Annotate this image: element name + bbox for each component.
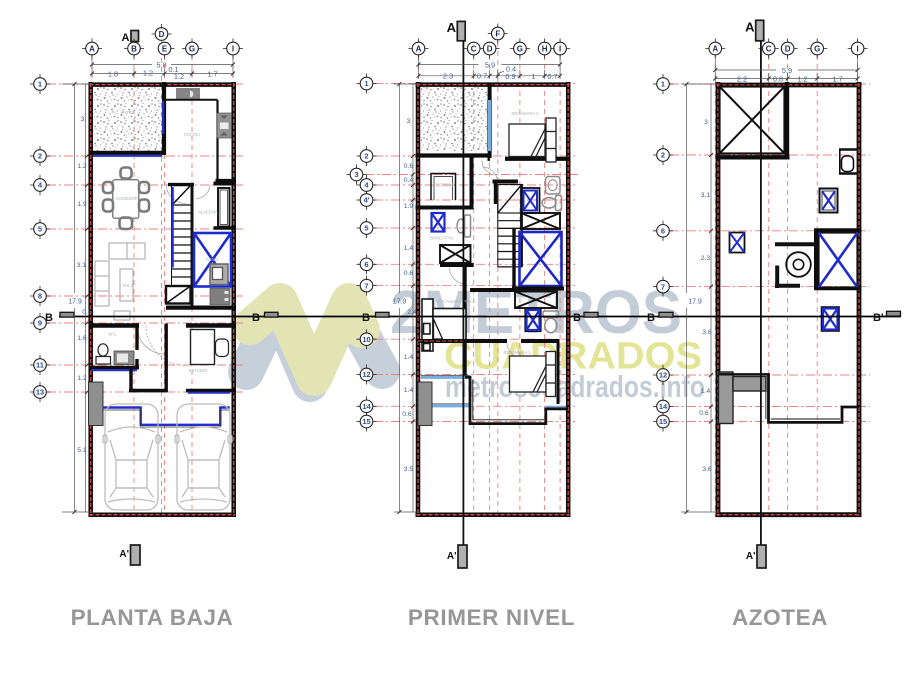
- svg-text:COMEDOR: COMEDOR: [116, 196, 138, 201]
- svg-text:3: 3: [81, 116, 85, 123]
- svg-text:9: 9: [38, 319, 42, 328]
- svg-text:10: 10: [362, 335, 370, 344]
- svg-text:1.4: 1.4: [404, 245, 414, 252]
- svg-text:I: I: [232, 44, 234, 53]
- svg-text:1.2: 1.2: [797, 74, 807, 83]
- svg-text:B: B: [647, 312, 655, 324]
- svg-text:0.6: 0.6: [404, 163, 414, 170]
- svg-text:A': A': [746, 551, 756, 562]
- svg-text:3: 3: [407, 118, 411, 125]
- svg-text:D: D: [785, 44, 791, 53]
- svg-text:2: 2: [38, 152, 42, 161]
- svg-text:7: 7: [364, 281, 368, 290]
- svg-text:2.4: 2.4: [407, 309, 417, 316]
- svg-text:15: 15: [659, 417, 667, 426]
- svg-text:VESTIDOR: VESTIDOR: [433, 183, 454, 188]
- svg-text:14: 14: [659, 402, 668, 411]
- svg-text:0.4: 0.4: [404, 177, 414, 184]
- svg-text:C: C: [766, 44, 772, 53]
- svg-text:0.9: 0.9: [505, 72, 515, 81]
- svg-text:1: 1: [364, 79, 368, 88]
- svg-text:3.5: 3.5: [404, 466, 414, 473]
- svg-text:2: 2: [364, 152, 368, 161]
- svg-text:12: 12: [362, 370, 370, 379]
- svg-text:4': 4': [364, 196, 370, 205]
- svg-text:1.7: 1.7: [207, 69, 217, 78]
- svg-text:1: 1: [531, 72, 535, 81]
- svg-text:1.8: 1.8: [108, 69, 118, 78]
- svg-text:RECAMARA 1: RECAMARA 1: [504, 350, 532, 355]
- svg-text:A': A': [447, 551, 457, 562]
- svg-text:1.4: 1.4: [404, 387, 414, 394]
- svg-text:A: A: [447, 20, 457, 35]
- svg-text:BAÑO PPAL: BAÑO PPAL: [430, 236, 454, 241]
- svg-text:5.1: 5.1: [77, 447, 87, 454]
- svg-text:14: 14: [362, 402, 371, 411]
- svg-text:0.6: 0.6: [82, 309, 92, 316]
- svg-text:PRIMER NIVEL: PRIMER NIVEL: [408, 605, 575, 630]
- svg-text:2.3: 2.3: [701, 255, 711, 262]
- svg-text:H: H: [542, 44, 548, 53]
- svg-text:5: 5: [38, 225, 42, 234]
- svg-text:3: 3: [704, 119, 708, 126]
- svg-text:6: 6: [364, 260, 368, 269]
- svg-text:I: I: [559, 44, 561, 53]
- svg-text:1.2: 1.2: [77, 375, 87, 382]
- svg-text:15: 15: [362, 417, 370, 426]
- svg-text:0.6: 0.6: [699, 410, 709, 417]
- svg-text:G: G: [517, 44, 523, 53]
- svg-text:17.9: 17.9: [688, 299, 702, 306]
- svg-text:SALA: SALA: [123, 283, 134, 288]
- svg-text:11: 11: [36, 361, 44, 370]
- svg-text:A: A: [89, 44, 95, 53]
- svg-text:3: 3: [354, 170, 358, 179]
- svg-text:ALACENA: ALACENA: [198, 210, 218, 215]
- svg-text:1.6: 1.6: [77, 335, 87, 342]
- svg-text:G: G: [814, 44, 820, 53]
- svg-text:ESTUDIO: ESTUDIO: [189, 368, 208, 373]
- svg-text:W.C.: W.C.: [108, 332, 117, 337]
- svg-text:A: A: [416, 44, 422, 53]
- svg-text:1.7: 1.7: [832, 74, 842, 83]
- svg-text:I: I: [856, 44, 858, 53]
- svg-text:12: 12: [659, 371, 667, 380]
- svg-text:5.9: 5.9: [485, 60, 495, 69]
- svg-text:1.2: 1.2: [77, 163, 87, 170]
- svg-text:6: 6: [661, 227, 665, 236]
- svg-text:FOSO: FOSO: [206, 257, 219, 262]
- svg-text:3.1: 3.1: [77, 262, 87, 269]
- svg-text:COCINA: COCINA: [184, 132, 200, 137]
- svg-text:13: 13: [36, 388, 44, 397]
- svg-text:8: 8: [38, 292, 42, 301]
- svg-text:5.8: 5.8: [156, 60, 166, 69]
- svg-text:A: A: [122, 32, 130, 44]
- svg-text:E: E: [162, 44, 168, 53]
- svg-text:0.6: 0.6: [404, 270, 414, 277]
- svg-text:A': A': [119, 549, 129, 560]
- svg-text:D: D: [159, 30, 165, 39]
- svg-text:3.6: 3.6: [702, 329, 712, 336]
- svg-text:PLANTA BAJA: PLANTA BAJA: [71, 605, 234, 630]
- svg-text:2.2: 2.2: [737, 74, 747, 83]
- svg-text:17.9: 17.9: [68, 299, 82, 306]
- svg-text:D: D: [487, 44, 493, 53]
- svg-text:0.7: 0.7: [477, 72, 487, 81]
- svg-text:2: 2: [661, 151, 665, 160]
- svg-text:1.4: 1.4: [701, 388, 711, 395]
- svg-text:5: 5: [364, 224, 368, 233]
- svg-text:5.9: 5.9: [782, 66, 792, 75]
- svg-text:0.6: 0.6: [402, 411, 412, 418]
- svg-text:C: C: [471, 44, 477, 53]
- svg-text:RECAMARA PPAL: RECAMARA PPAL: [437, 299, 473, 304]
- svg-text:3.1: 3.1: [701, 192, 711, 199]
- svg-text:3.6: 3.6: [702, 466, 712, 473]
- svg-text:RECAMARA 2: RECAMARA 2: [512, 111, 540, 116]
- svg-text:B: B: [252, 312, 260, 324]
- svg-text:B': B': [873, 312, 884, 324]
- svg-text:AZOTEA: AZOTEA: [732, 605, 828, 630]
- svg-text:B: B: [573, 312, 581, 324]
- svg-text:1.9: 1.9: [404, 203, 414, 210]
- svg-text:7: 7: [661, 282, 665, 291]
- svg-text:B: B: [131, 44, 137, 53]
- svg-text:1: 1: [661, 80, 665, 89]
- svg-text:1: 1: [38, 80, 42, 89]
- svg-text:1.9: 1.9: [77, 201, 87, 208]
- svg-text:F: F: [495, 29, 500, 38]
- svg-text:A: A: [745, 20, 755, 35]
- svg-text:G: G: [189, 44, 195, 53]
- svg-text:PATIO: PATIO: [121, 110, 134, 115]
- svg-text:B: B: [362, 312, 370, 324]
- svg-text:1.4: 1.4: [404, 354, 414, 361]
- svg-text:1.2: 1.2: [143, 68, 153, 77]
- svg-text:0.8: 0.8: [773, 74, 783, 83]
- svg-text:17.9: 17.9: [393, 299, 407, 306]
- svg-text:1.2: 1.2: [174, 72, 184, 81]
- svg-text:A: A: [712, 44, 718, 53]
- svg-text:2.3: 2.3: [443, 72, 453, 81]
- svg-text:0.7: 0.7: [547, 72, 557, 81]
